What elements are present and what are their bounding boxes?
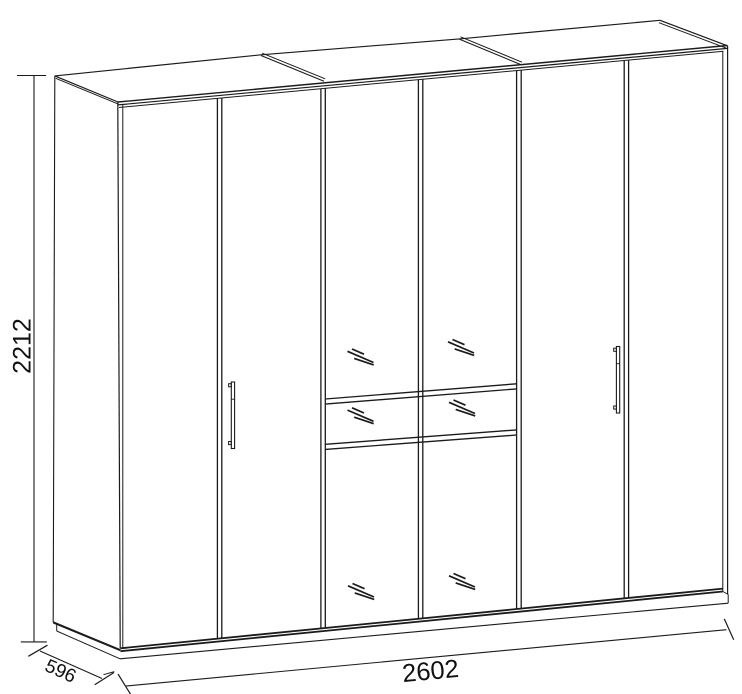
svg-text:2212: 2212 xyxy=(9,318,37,374)
svg-text:2602: 2602 xyxy=(401,655,460,688)
